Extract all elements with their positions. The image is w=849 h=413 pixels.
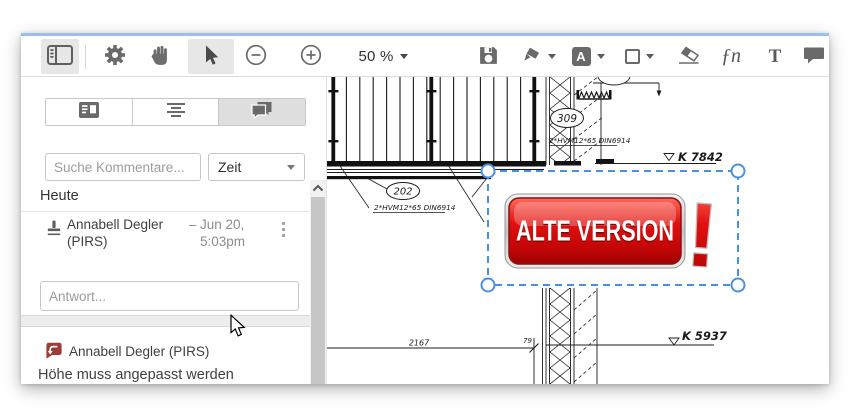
highlighter-tool-button[interactable] xyxy=(513,36,565,77)
chevron-down-icon xyxy=(597,54,605,59)
comment-menu-button[interactable] xyxy=(281,221,286,243)
deck-lines xyxy=(327,170,544,180)
zoom-in-icon xyxy=(299,43,323,70)
chevron-down-icon xyxy=(646,54,654,59)
text-tool-button[interactable]: T xyxy=(757,36,793,77)
comment-dash: – xyxy=(189,217,197,232)
shape-tool-button[interactable] xyxy=(614,36,664,77)
tab-comments[interactable] xyxy=(219,99,305,125)
scrollbar-thumb[interactable] xyxy=(311,197,325,384)
dim-small: 79 xyxy=(523,337,532,345)
signature-icon: ƒn xyxy=(721,45,741,68)
settings-button[interactable] xyxy=(97,36,133,77)
chevron-down-icon xyxy=(287,165,295,170)
selection-handle-top-right[interactable] xyxy=(732,165,745,178)
wall-section-lower xyxy=(543,288,598,384)
stamp-annotation-icon xyxy=(45,220,63,242)
outline-icon xyxy=(167,102,185,123)
comment-preview-item[interactable]: Annabell Degler (PIRS) Höhe muss angepas… xyxy=(21,327,310,384)
comments-divider xyxy=(21,315,310,327)
sidebar-scrollbar[interactable] xyxy=(310,180,326,384)
zoom-out-icon xyxy=(244,43,268,70)
comment-tool-button[interactable] xyxy=(796,36,829,77)
tab-thumbnails[interactable] xyxy=(46,99,133,125)
comment-author: Annabell Degler (PIRS) xyxy=(67,217,181,250)
selection-handle-bottom-right[interactable] xyxy=(732,279,745,292)
comment-author: Annabell Degler (PIRS) xyxy=(69,344,209,359)
stamp-exclamation: ! xyxy=(684,185,721,287)
sort-value: Zeit xyxy=(218,159,241,175)
section-header: Heute xyxy=(21,181,310,212)
save-button[interactable] xyxy=(470,36,506,77)
level-marker-lower: K 5937 xyxy=(682,329,727,343)
rectangle-shape-icon xyxy=(625,49,640,64)
chevron-down-icon xyxy=(400,54,408,59)
comments-icon xyxy=(251,101,273,124)
bolt-spec-upper: 2*HVM12*65 DIN6914 xyxy=(549,136,631,145)
highlighter-icon xyxy=(522,45,542,68)
zoom-in-button[interactable] xyxy=(293,36,329,77)
mouse-cursor xyxy=(229,314,248,344)
select-tool-button[interactable] xyxy=(188,39,234,74)
save-icon xyxy=(478,45,499,69)
gear-icon xyxy=(103,43,127,70)
dimension-lines xyxy=(327,338,714,384)
comment-time: 5:03pm xyxy=(200,234,245,251)
bolt-spec-lower: 2*HVM12*65 DIN6914 xyxy=(374,203,456,212)
alte-version-stamp[interactable]: ALTE VERSION ALTE VERSION ! xyxy=(505,185,721,287)
window-body: Zeit Heute Annabell Degler (PIRS) – Jun … xyxy=(21,77,829,384)
app-window: 50 % A ƒn xyxy=(21,33,829,384)
plan-drawing: 309 2*HVM12*65 DIN6914 202 2*HVM12*65 DI… xyxy=(327,77,829,384)
sidebar-tabbar xyxy=(45,98,306,126)
pan-tool-button[interactable] xyxy=(142,36,178,77)
dim-total: 2167 xyxy=(409,339,430,348)
hand-icon xyxy=(149,44,172,70)
select-arrow-icon xyxy=(199,43,223,70)
comment-text: Höhe muss angepasst werden xyxy=(38,367,234,383)
zoom-out-button[interactable] xyxy=(238,36,274,77)
toolbar-divider xyxy=(85,45,86,69)
reply-input[interactable] xyxy=(40,281,299,311)
thumbnails-icon xyxy=(79,102,99,123)
zoom-level-value: 50 % xyxy=(359,48,394,65)
document-viewport[interactable]: 309 2*HVM12*65 DIN6914 202 2*HVM12*65 DI… xyxy=(326,77,829,384)
stamp-text: ALTE VERSION xyxy=(516,216,674,248)
text-tool-icon: T xyxy=(769,46,782,68)
comment-bubble-icon xyxy=(803,46,825,67)
comments-sidebar: Zeit Heute Annabell Degler (PIRS) – Jun … xyxy=(21,77,326,384)
level-marker-upper: K 7842 xyxy=(678,150,723,164)
railing-detail xyxy=(333,77,534,161)
text-style-tool-button[interactable]: A xyxy=(563,36,613,77)
section-header-label: Heute xyxy=(40,188,79,204)
comment-date: Jun 20, xyxy=(200,217,245,234)
eraser-tool-button[interactable] xyxy=(670,36,706,77)
callout-309: 309 xyxy=(557,113,577,125)
selection-handle-bottom-left[interactable] xyxy=(482,279,495,292)
sort-dropdown[interactable]: Zeit xyxy=(208,153,305,181)
tab-outline[interactable] xyxy=(133,99,220,125)
chevron-down-icon xyxy=(548,54,556,59)
callout-202: 202 xyxy=(393,187,412,198)
sidebar-toggle-button[interactable] xyxy=(41,39,79,74)
selection-handle-top-left[interactable] xyxy=(482,165,495,178)
signature-tool-button[interactable]: ƒn xyxy=(713,36,749,77)
stamp-reply-icon xyxy=(45,342,63,364)
zoom-level-dropdown[interactable]: 50 % xyxy=(347,36,419,77)
font-style-icon: A xyxy=(572,47,591,66)
scroll-up-arrow-icon[interactable] xyxy=(310,180,326,196)
toolbar: 50 % A ƒn xyxy=(21,36,829,77)
search-comments-input[interactable] xyxy=(45,153,201,181)
eraser-icon xyxy=(677,46,700,68)
comment-timestamp: Jun 20, 5:03pm xyxy=(200,217,245,250)
sidebar-toggle-icon xyxy=(47,45,73,68)
